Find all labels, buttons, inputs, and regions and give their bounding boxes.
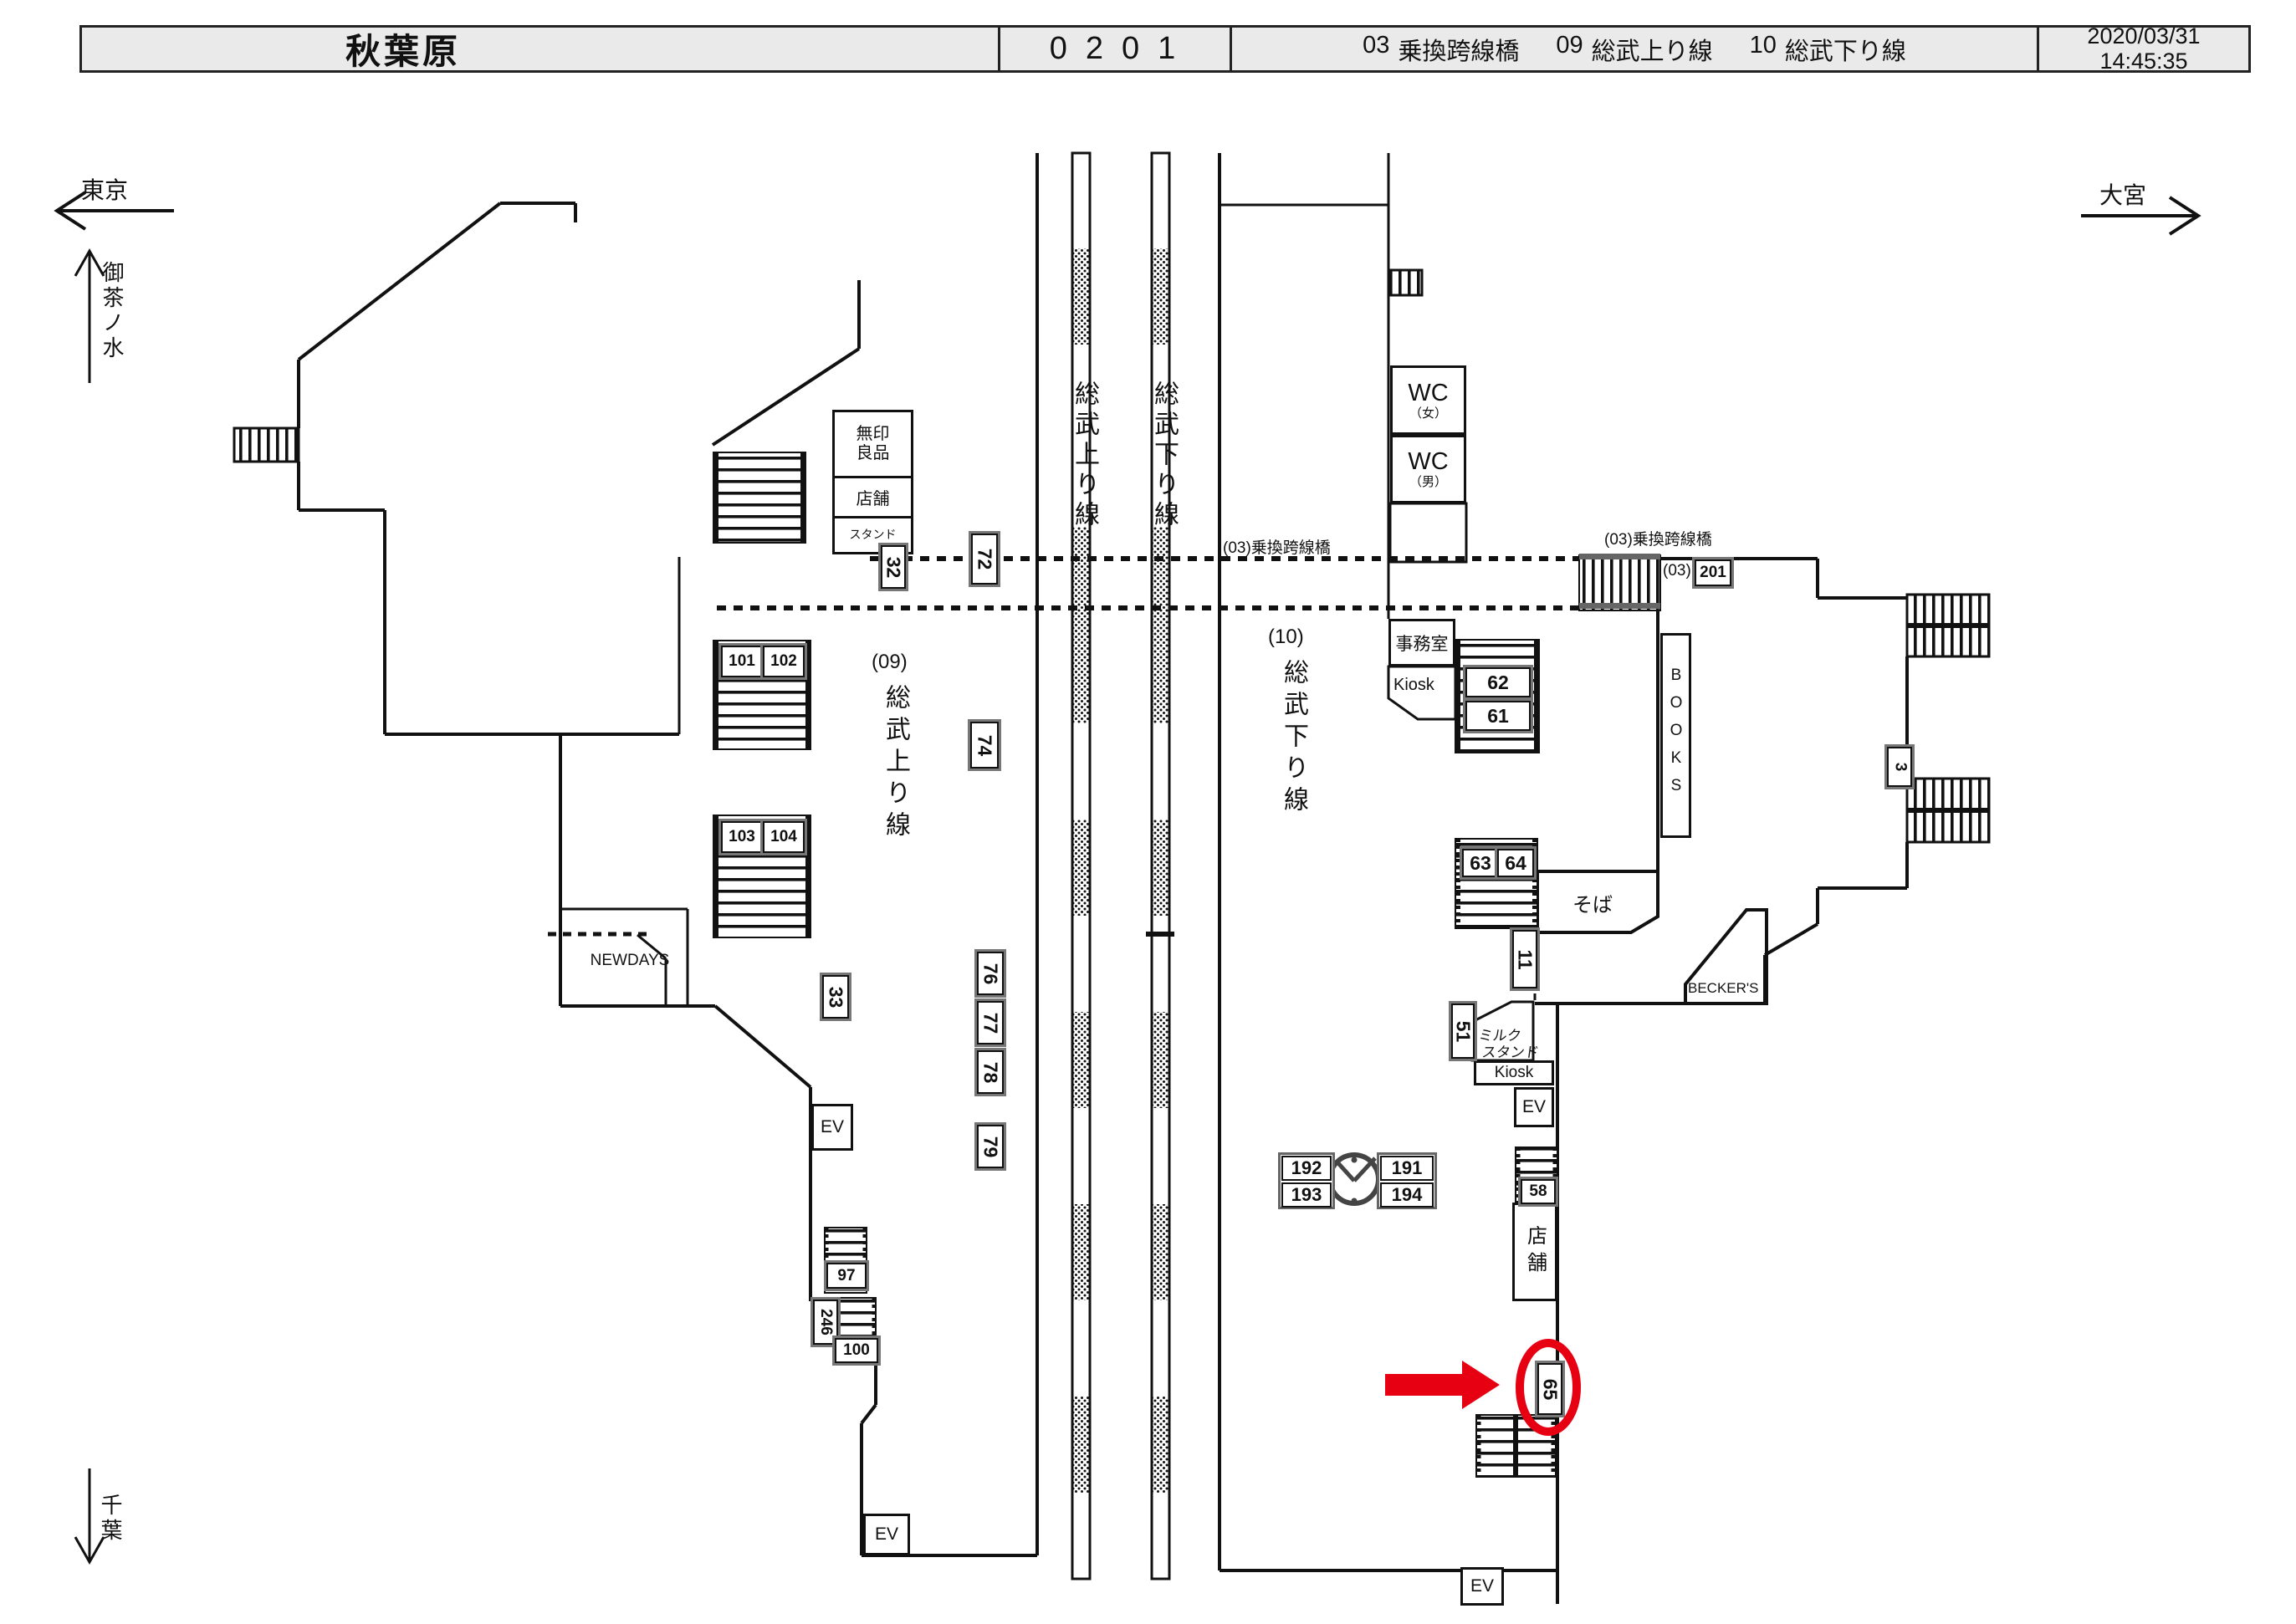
station-title: 秋葉原	[345, 23, 461, 74]
camera-box-192[interactable]: 192	[1281, 1156, 1332, 1181]
camera-box-76[interactable]: 76	[977, 952, 1004, 995]
camera-box-103[interactable]: 103	[721, 821, 763, 853]
ev-box-right-mid: EV	[1514, 1087, 1554, 1127]
office-box: 事務室	[1388, 619, 1455, 666]
wc-male-label: （男）	[1409, 476, 1447, 488]
camera-box-65[interactable]: 65	[1537, 1363, 1562, 1415]
camera-box-64[interactable]: 64	[1497, 849, 1534, 877]
overbridge-dashed-lines	[717, 559, 1579, 608]
direction-arrows	[57, 192, 2198, 1562]
wc-female-box: WC （女）	[1390, 365, 1466, 435]
clock-icon	[1330, 1155, 1378, 1204]
books-box: BOOKS	[1660, 633, 1691, 838]
station-map-screen: 秋葉原 0201 03 乗換跨線橋 09 総武上り線 10 総武下り線 2020…	[0, 0, 2296, 1624]
direction-east-label: 大宮	[2099, 177, 2146, 211]
wc-female-label: （女）	[1409, 407, 1447, 420]
camera-box-51[interactable]: 51	[1451, 1004, 1475, 1059]
camera-box-191[interactable]: 191	[1380, 1156, 1434, 1181]
monitor-code: 0201	[1036, 31, 1194, 67]
legend-name: 乗換跨線橋	[1398, 32, 1519, 67]
platform-09-name: 総武上り線	[877, 684, 913, 872]
direction-west-label: 東京	[81, 172, 128, 206]
muji-name-label: 無印良品	[853, 425, 893, 463]
books-label: BOOKS	[1667, 666, 1685, 804]
header-bar: 秋葉原 0201 03 乗換跨線橋 09 総武上り線 10 総武下り線 2020…	[79, 25, 2251, 73]
kiosk-label-upper: Kiosk	[1393, 676, 1434, 695]
legend-no: 09	[1556, 32, 1583, 67]
camera-box-193[interactable]: 193	[1281, 1182, 1332, 1208]
platform-edges	[1037, 153, 1220, 1570]
camera-box-101[interactable]: 101	[721, 646, 763, 677]
milkstand-label-2: スタンド	[1480, 1040, 1541, 1061]
camera-box-72[interactable]: 72	[971, 534, 998, 585]
newdays-label: NEWDAYS	[575, 952, 684, 970]
muji-stand-label: スタンド	[835, 516, 911, 549]
right-platform-outline	[1220, 153, 1907, 1604]
ev-box-right-bottom: EV	[1460, 1567, 1504, 1606]
legend-no: 10	[1750, 32, 1777, 67]
shop-box: 店舗	[1512, 1203, 1557, 1301]
track-down-label: 総武下り線	[1145, 380, 1182, 535]
overbridge-no-label: (03)	[1663, 562, 1691, 580]
camera-box-58[interactable]: 58	[1521, 1179, 1556, 1204]
platform-10-number: (10)	[1268, 626, 1304, 649]
camera-box-102[interactable]: 102	[763, 646, 805, 677]
wc-label: WC	[1408, 450, 1448, 474]
legend-name: 総武上り線	[1592, 32, 1713, 67]
camera-box-194[interactable]: 194	[1380, 1182, 1434, 1208]
camera-box-201[interactable]: 201	[1695, 559, 1731, 586]
camera-box-104[interactable]: 104	[763, 821, 805, 853]
soba-label: そば	[1572, 888, 1613, 917]
muji-shop-label: 店舗	[835, 476, 911, 516]
camera-box-63[interactable]: 63	[1462, 849, 1499, 877]
legend-no: 03	[1363, 32, 1389, 67]
stairs	[234, 270, 1989, 1477]
ev-box-left-bottom: EV	[863, 1514, 910, 1555]
camera-box-77[interactable]: 77	[977, 1001, 1004, 1044]
camera-box-3[interactable]: 3	[1887, 747, 1912, 787]
muji-shop-block: 無印良品 店舗 スタンド	[832, 410, 913, 554]
camera-box-61[interactable]: 61	[1465, 701, 1531, 731]
header-timestamp-cell: 2020/03/31 14:45:35	[2037, 28, 2248, 70]
legend-name: 総武下り線	[1785, 32, 1906, 67]
camera-box-74[interactable]: 74	[970, 722, 999, 769]
camera-box-62[interactable]: 62	[1465, 667, 1531, 697]
camera-box-191-194[interactable]: 191 194	[1377, 1152, 1437, 1209]
header-code-cell: 0201	[998, 28, 1230, 70]
map-linework	[0, 0, 2296, 1624]
camera-box-100[interactable]: 100	[835, 1338, 878, 1363]
camera-box-32[interactable]: 32	[881, 545, 906, 589]
overbridge-label-right: (03)乗換跨線橋	[1604, 527, 1712, 549]
shop-label: 店舗	[1521, 1225, 1550, 1279]
header-camera-legend: 03 乗換跨線橋 09 総武上り線 10 総武下り線	[1230, 28, 2037, 70]
legend-item: 09 総武上り線	[1556, 32, 1712, 67]
kiosk-box-lower: Kiosk	[1474, 1060, 1554, 1085]
header-station-cell: 秋葉原	[82, 28, 998, 70]
camera-box-97[interactable]: 97	[826, 1263, 867, 1289]
time-text: 14:45:35	[2087, 49, 2200, 74]
direction-north-label: 御茶ノ水	[97, 261, 128, 386]
left-platform-outline	[299, 203, 1037, 1555]
camera-box-11[interactable]: 11	[1512, 930, 1537, 988]
date-text: 2020/03/31	[2087, 24, 2200, 49]
beckers-label: BECKER'S	[1688, 980, 1759, 997]
wc-label: WC	[1408, 381, 1448, 406]
platform-09-number: (09)	[872, 651, 908, 674]
camera-box-192-193[interactable]: 192 193	[1278, 1152, 1335, 1209]
wc-male-box: WC （男）	[1390, 435, 1466, 503]
legend-item: 03 乗換跨線橋	[1363, 32, 1519, 67]
camera-box-78[interactable]: 78	[977, 1050, 1004, 1094]
track-up-label: 総武上り線	[1066, 380, 1102, 535]
camera-box-79[interactable]: 79	[977, 1125, 1004, 1168]
direction-south-label: 千葉	[95, 1494, 126, 1560]
track-strips	[1072, 153, 1169, 1579]
camera-box-33[interactable]: 33	[822, 975, 849, 1019]
overbridge-label-left: (03)乗換跨線橋	[1223, 535, 1331, 558]
platform-10-name: 総武下り線	[1275, 659, 1312, 851]
legend-item: 10 総武下り線	[1750, 32, 1906, 67]
ev-box-left-mid: EV	[811, 1104, 853, 1151]
